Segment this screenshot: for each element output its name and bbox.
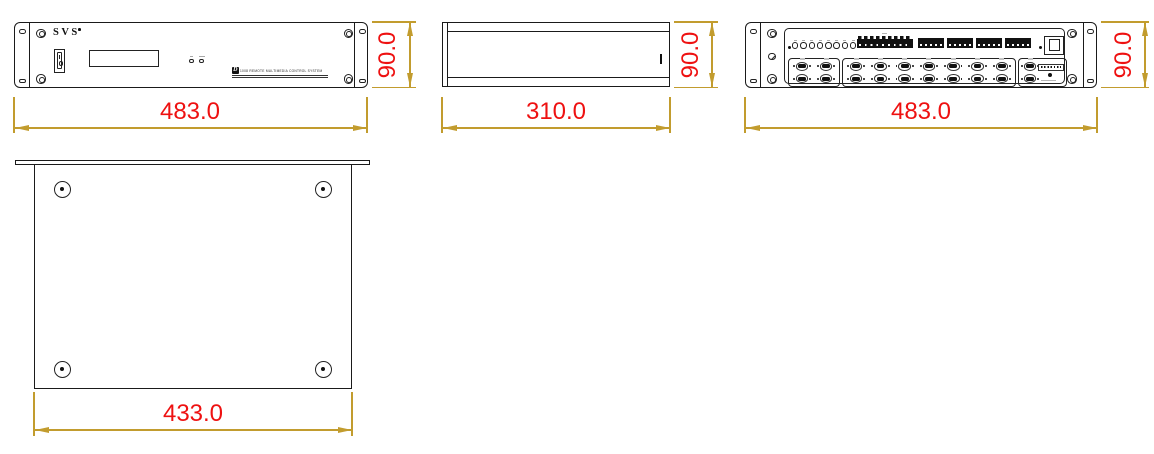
db9-screw-pin [888,78,890,80]
db9-screw-pin [793,65,795,67]
logo-dot-icon [78,28,81,31]
side-latch-tick [660,54,662,65]
db9-shell [947,74,960,83]
ir-output-port [850,40,856,49]
dim-arrow-right [1083,125,1097,131]
status-dot [788,46,791,49]
brand-underline [232,75,328,76]
db9-screw-pin [1021,65,1023,67]
panel-screw-icon [767,29,777,39]
mounting-ear-slot [750,79,757,84]
db9-connector [943,73,963,84]
terminal-block-segment [976,38,1002,48]
db9-screw-pin [817,78,819,80]
mounting-ear-slot [359,79,366,84]
dim-arrow-right [353,125,367,131]
db9-connector [846,61,866,72]
brand-underline [232,77,328,78]
port-label-tick [852,40,855,42]
dim-arrow-down [407,73,413,87]
db9-connector [1020,61,1040,72]
db9-dsub [974,64,982,68]
db9-dsub [852,77,860,81]
db9-shell [796,74,809,83]
db9-screw-pin [793,78,795,80]
terminal-block-segment [947,38,973,48]
dim-label: 90.0 [376,20,400,90]
db9-connector [895,73,915,84]
db9-dsub [852,64,860,68]
foot-pad [54,181,71,198]
dim-line [14,127,367,128]
dim-label: 483.0 [851,100,991,124]
db9-connector [870,61,890,72]
db9-connector [968,61,988,72]
db9-screw-pin [912,65,914,67]
db9-dsub [998,77,1006,81]
db9-screw-pin [993,78,995,80]
side-view [442,22,670,88]
db9-screw-pin [1021,78,1023,80]
ir-output-port [833,40,839,49]
db9-screw-pin [847,65,849,67]
rear-view [745,22,1097,89]
mounting-ear-slot [1087,29,1094,34]
db9-screw-pin [863,65,865,67]
ir-port-icon [842,42,848,48]
db9-dsub [949,77,957,81]
ear-divider-line [1083,23,1084,88]
db9-connector [792,61,812,72]
db9-screw-pin [920,65,922,67]
dim-arrow-left [746,125,760,131]
db9-shell [923,74,936,83]
ir-port-row [792,40,856,49]
db9-dsub [925,64,933,68]
dim-label: 310.0 [486,100,626,124]
dim-arrow-right [656,125,670,131]
ir-output-port [809,40,815,49]
terminal-block-row [918,38,1031,48]
db9-screw-pin [968,78,970,80]
power-switch [54,49,65,73]
db9-connector [895,61,915,72]
db9-dsub [798,77,806,81]
port-label-tick [843,40,846,42]
db9-connector [816,73,836,84]
ir-port-icon [817,42,823,48]
db9-dsub [1026,77,1034,81]
db9-grid [844,60,1014,85]
dim-arrow-left [443,125,457,131]
mounting-ear-slot [359,29,366,34]
ir-port-icon [825,42,831,48]
db9-screw-pin [896,65,898,67]
port-label-tick [802,40,805,42]
db9-shell [971,62,984,71]
led-lamp-icon [199,59,204,64]
dim-arrow-right [338,427,352,433]
db9-shell [850,62,863,71]
port-label-tick [794,40,797,42]
svs-logo: SVS [53,27,81,38]
panel-screw-icon [1067,74,1077,84]
foot-pad [54,361,71,378]
db9-screw-pin [871,65,873,67]
db9-group [1018,58,1067,87]
dim-line [34,429,352,430]
dim-label: 433.0 [123,402,263,426]
db9-screw-pin [863,78,865,80]
ir-port-icon [792,42,798,48]
db9-screw-pin [985,78,987,80]
power-switch-rocker [57,52,63,69]
svs-logo-text: SVS [53,27,80,38]
db9-group [842,58,1016,87]
model-logo: D [232,67,239,74]
db9-screw-pin [993,65,995,67]
port-label-tick [827,40,830,42]
top-view [34,164,352,389]
db9-shell [820,62,833,71]
db9-shell [796,62,809,71]
db9-connector [792,73,812,84]
db9-screw-pin [833,78,835,80]
db9-dsub [901,77,909,81]
technical-drawing: SVS D 1008 REMOTE MULTIMEDIA CONTROL SYS… [0,0,1154,454]
db9-screw-pin [817,65,819,67]
db9-connector [919,61,939,72]
brand-model-text: D 1008 REMOTE MULTIMEDIA CONTROL SYSTEM [232,67,332,78]
dim-arrow-left [35,427,49,433]
ear-divider-line [760,23,761,88]
db9-screw-pin [961,78,963,80]
dim-arrow-down [709,73,715,87]
panel-screw-icon [344,74,354,84]
ir-output-port [800,40,806,49]
dim-label: 90.0 [679,20,703,90]
port-label-tick [810,40,813,42]
mounting-ear-slot [750,29,757,34]
db9-screw-pin [833,65,835,67]
dim-arrow-left [15,125,29,131]
ear-divider-line [29,23,30,88]
db9-shell [1024,62,1037,71]
db9-grid [790,60,838,85]
db9-shell [996,74,1009,83]
ir-port-icon [809,42,815,48]
db9-shell [971,74,984,83]
db9-connector [846,73,866,84]
db9-screw-pin [871,78,873,80]
db9-dsub [949,64,957,68]
db9-dsub [1026,64,1034,68]
db9-screw-pin [968,65,970,67]
panel-screw-icon [1067,29,1077,39]
db9-shell [874,74,887,83]
power-label-tick [1041,80,1056,82]
terminal-block-segment [918,38,944,48]
db9-dsub [925,77,933,81]
led-label-tick [199,56,205,58]
db9-connector [943,61,963,72]
ir-output-port [842,40,848,49]
db9-screw-pin [961,65,963,67]
terminal-slots [859,44,911,46]
dim-arrow-down [1142,73,1148,87]
ir-port-icon [850,42,856,48]
db9-group [788,58,840,87]
db9-connector [919,73,939,84]
db9-screw-pin [809,78,811,80]
dim-arrow-up [1142,22,1148,36]
panel-screw-icon [36,29,46,39]
port-label-tick [819,40,822,42]
db9-screw-pin [1009,65,1011,67]
side-rail-line [448,77,669,78]
db9-screw-pin [912,78,914,80]
db9-dsub [901,64,909,68]
ir-output-port [792,40,798,49]
db9-screw-pin [1009,78,1011,80]
db9-screw-pin [936,65,938,67]
db9-grid [1020,60,1040,85]
led-lamp-icon [189,59,194,64]
db9-dsub [822,77,830,81]
led-indicator [199,56,205,64]
mounting-ear-slot [1087,79,1094,84]
db9-connector [992,73,1012,84]
db9-shell [898,74,911,83]
port-label-tick [835,40,838,42]
db9-shell [1024,74,1037,83]
db9-connector [992,61,1012,72]
db9-shell [947,62,960,71]
db9-connector [968,73,988,84]
db9-shell [850,74,863,83]
dim-line [442,127,670,128]
db9-screw-pin [936,78,938,80]
db9-dsub [974,77,982,81]
db9-dsub [798,64,806,68]
ir-port-icon [800,42,806,48]
panel-screw-icon [767,74,777,84]
db9-dsub [877,77,885,81]
panel-screw-icon [344,29,354,39]
db9-screw-pin [847,78,849,80]
db9-screw-pin [809,65,811,67]
db9-dsub [998,64,1006,68]
db9-screw-pin [888,65,890,67]
db9-screw-pin [896,78,898,80]
panel-screw-icon [36,74,46,84]
dim-line [745,127,1097,128]
dc-power-jack [1048,73,1052,77]
dim-arrow-up [407,22,413,36]
db9-connector [870,73,890,84]
foot-pad [315,181,332,198]
rj45-inner [1049,39,1060,51]
led-indicator [189,56,194,64]
db9-screw-pin [1037,78,1039,80]
strip-connector [1038,64,1064,71]
ir-output-port [817,40,823,49]
foot-pad [315,361,332,378]
side-rail-line [448,31,669,32]
status-leds [189,56,205,64]
db9-shell [820,74,833,83]
dim-label: 483.0 [120,100,260,124]
db9-screw-pin [920,78,922,80]
ground-screw-icon [768,53,776,61]
db9-dsub [822,64,830,68]
rj45-port [1044,36,1064,55]
status-dot [1039,46,1042,49]
ear-divider-line [354,23,355,88]
dim-label: 90.0 [1112,20,1136,90]
lcd-display [89,50,159,67]
db9-shell [996,62,1009,71]
mounting-ear-slot [19,79,26,84]
led-label-tick [190,56,194,58]
db9-connector [816,61,836,72]
mounting-ear-slot [19,29,26,34]
db9-shell [874,62,887,71]
terminal-block-comb [857,36,913,48]
dim-arrow-up [709,22,715,36]
db9-screw-pin [985,65,987,67]
terminal-block-segment [1005,38,1031,48]
db9-dsub [877,64,885,68]
db9-shell [923,62,936,71]
db9-connector [1020,73,1040,84]
db9-screw-pin [944,78,946,80]
ir-port-icon [833,42,839,48]
front-view: SVS D 1008 REMOTE MULTIMEDIA CONTROL SYS… [14,22,368,89]
ir-output-port [825,40,831,49]
db9-screw-pin [944,65,946,67]
db9-shell [898,62,911,71]
port-label-tick [882,33,887,34]
model-text: 1008 REMOTE MULTIMEDIA CONTROL SYSTEM [240,70,322,74]
